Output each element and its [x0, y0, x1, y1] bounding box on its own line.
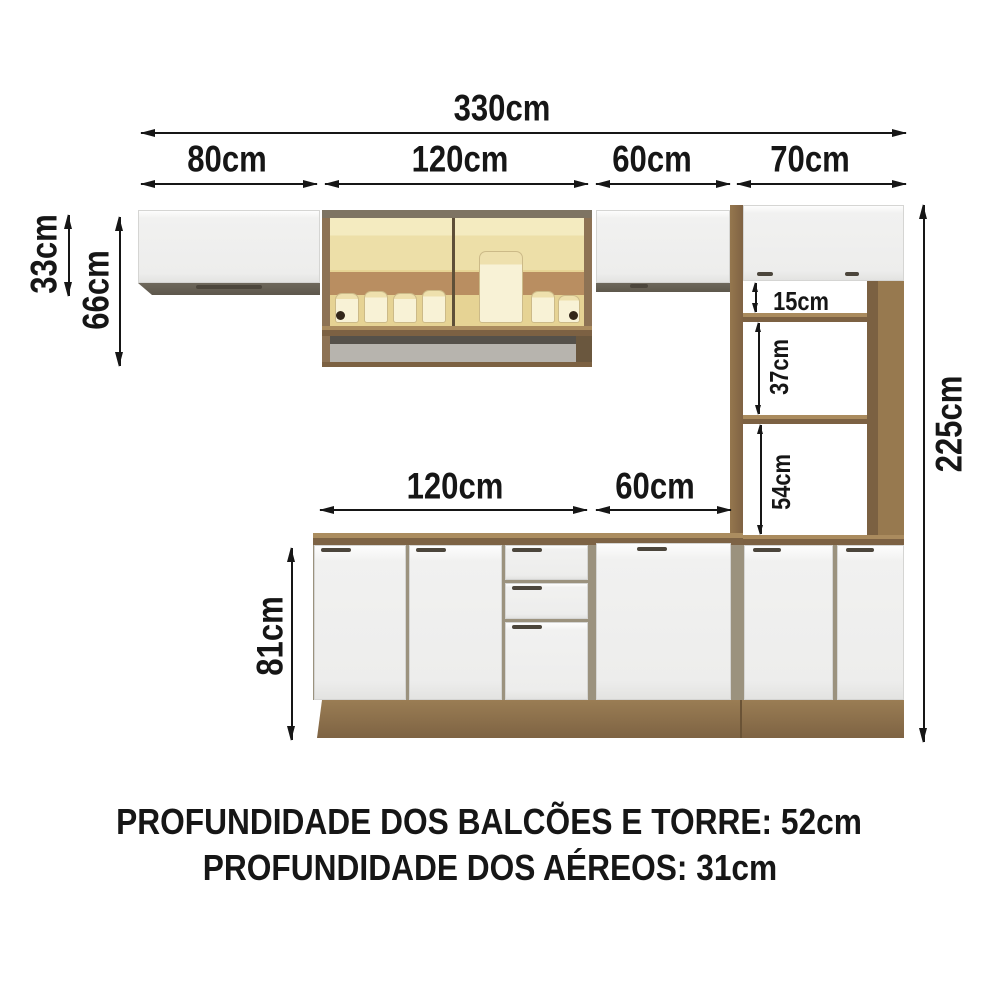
dim-arrow-section-80 — [141, 183, 317, 185]
dim-arrow-66 — [119, 217, 121, 366]
dim-arrow-81 — [291, 548, 293, 740]
depth-note-counters: PROFUNDIDADE DOS BALCÕES E TORRE: 52cm — [116, 804, 862, 840]
upper-cabinet-right-bottom-edge — [596, 283, 730, 292]
dim-label-33: 33cm — [26, 214, 63, 293]
base-door-60 — [596, 543, 731, 700]
glass-door-left — [330, 218, 452, 326]
jar-icon — [531, 291, 555, 323]
tower-counter-shelf — [743, 535, 904, 545]
dim-arrow-base-120 — [320, 509, 587, 511]
tower-top-cabinet-handle — [845, 272, 859, 276]
dim-label-225: 225cm — [931, 376, 968, 473]
dim-arrow-section-120 — [325, 183, 588, 185]
base-door-2 — [409, 545, 502, 700]
tower-top-cabinet-handle — [757, 272, 773, 276]
jar-icon — [364, 291, 388, 323]
drawer-1 — [505, 545, 588, 580]
tower-base-door-1 — [744, 545, 833, 700]
jar-icon — [393, 293, 417, 323]
dim-label-section-70: 70cm — [770, 141, 849, 178]
drawer-handle — [512, 586, 542, 590]
base-door-handle — [637, 547, 667, 551]
drawer-2 — [505, 583, 588, 619]
upper-cabinet-left — [138, 210, 320, 283]
dim-arrow-base-60 — [596, 509, 731, 511]
dim-arrow-gap-15 — [755, 283, 757, 312]
open-shelf-niche — [330, 336, 576, 362]
dim-label-66: 66cm — [78, 250, 115, 329]
glass-cabinet-bottom-frame — [322, 362, 592, 367]
toe-kick — [317, 700, 904, 738]
base-door-handle — [321, 548, 351, 552]
dim-label-base-120: 120cm — [407, 468, 504, 505]
dim-arrow-section-70 — [737, 183, 906, 185]
jar-icon — [479, 251, 523, 323]
dim-label-section-60: 60cm — [612, 141, 691, 178]
dim-arrow-total-width — [141, 132, 906, 134]
dim-label-gap-15: 15cm — [773, 288, 829, 314]
upper-cabinet-right-handle — [630, 284, 648, 288]
base-door-handle — [846, 548, 874, 552]
upper-cabinet-left-handle — [196, 285, 262, 289]
drawer-3 — [505, 622, 588, 700]
toe-kick-seam — [740, 700, 742, 738]
base-door-1 — [314, 545, 406, 700]
niche-side-panel — [576, 336, 592, 362]
drawer-handle — [512, 548, 542, 552]
glass-cabinet — [322, 210, 592, 367]
tower-right-side-panel — [867, 281, 904, 535]
base-door-handle — [416, 548, 446, 552]
tower-base-door-2 — [837, 545, 904, 700]
depth-note-uppers: PROFUNDIDADE DOS AÉREOS: 31cm — [203, 850, 777, 886]
kitchen-dimension-diagram: 330cm 80cm 120cm 60cm 70cm 33cm 66cm 225… — [0, 0, 1000, 1000]
dim-label-base-60: 60cm — [615, 468, 694, 505]
dim-label-81: 81cm — [252, 596, 289, 675]
glass-cabinet-top-frame — [322, 210, 592, 218]
drawer-handle — [512, 625, 542, 629]
drawer-stack — [505, 545, 588, 700]
dim-arrow-225 — [923, 205, 925, 742]
upper-cabinet-right — [596, 210, 730, 283]
tower-shelf-lower — [743, 415, 867, 424]
dim-label-gap-37: 37cm — [766, 339, 792, 395]
dim-arrow-33 — [68, 215, 70, 296]
glass-door-right — [455, 218, 584, 326]
tower-top-cabinet — [743, 205, 904, 281]
dim-label-gap-54: 54cm — [768, 454, 794, 510]
dim-arrow-gap-37 — [758, 323, 760, 414]
jar-icon — [422, 290, 446, 323]
door-knob-icon — [569, 311, 578, 320]
base-door-handle — [753, 548, 781, 552]
dim-arrow-section-60 — [596, 183, 730, 185]
dim-arrow-gap-54 — [760, 425, 762, 534]
jar-icon — [558, 295, 580, 323]
door-knob-icon — [336, 311, 345, 320]
dim-label-total-width: 330cm — [454, 90, 551, 127]
dim-label-section-120: 120cm — [412, 141, 509, 178]
glass-cabinet-mid-shelf — [322, 326, 592, 336]
dim-label-section-80: 80cm — [187, 141, 266, 178]
